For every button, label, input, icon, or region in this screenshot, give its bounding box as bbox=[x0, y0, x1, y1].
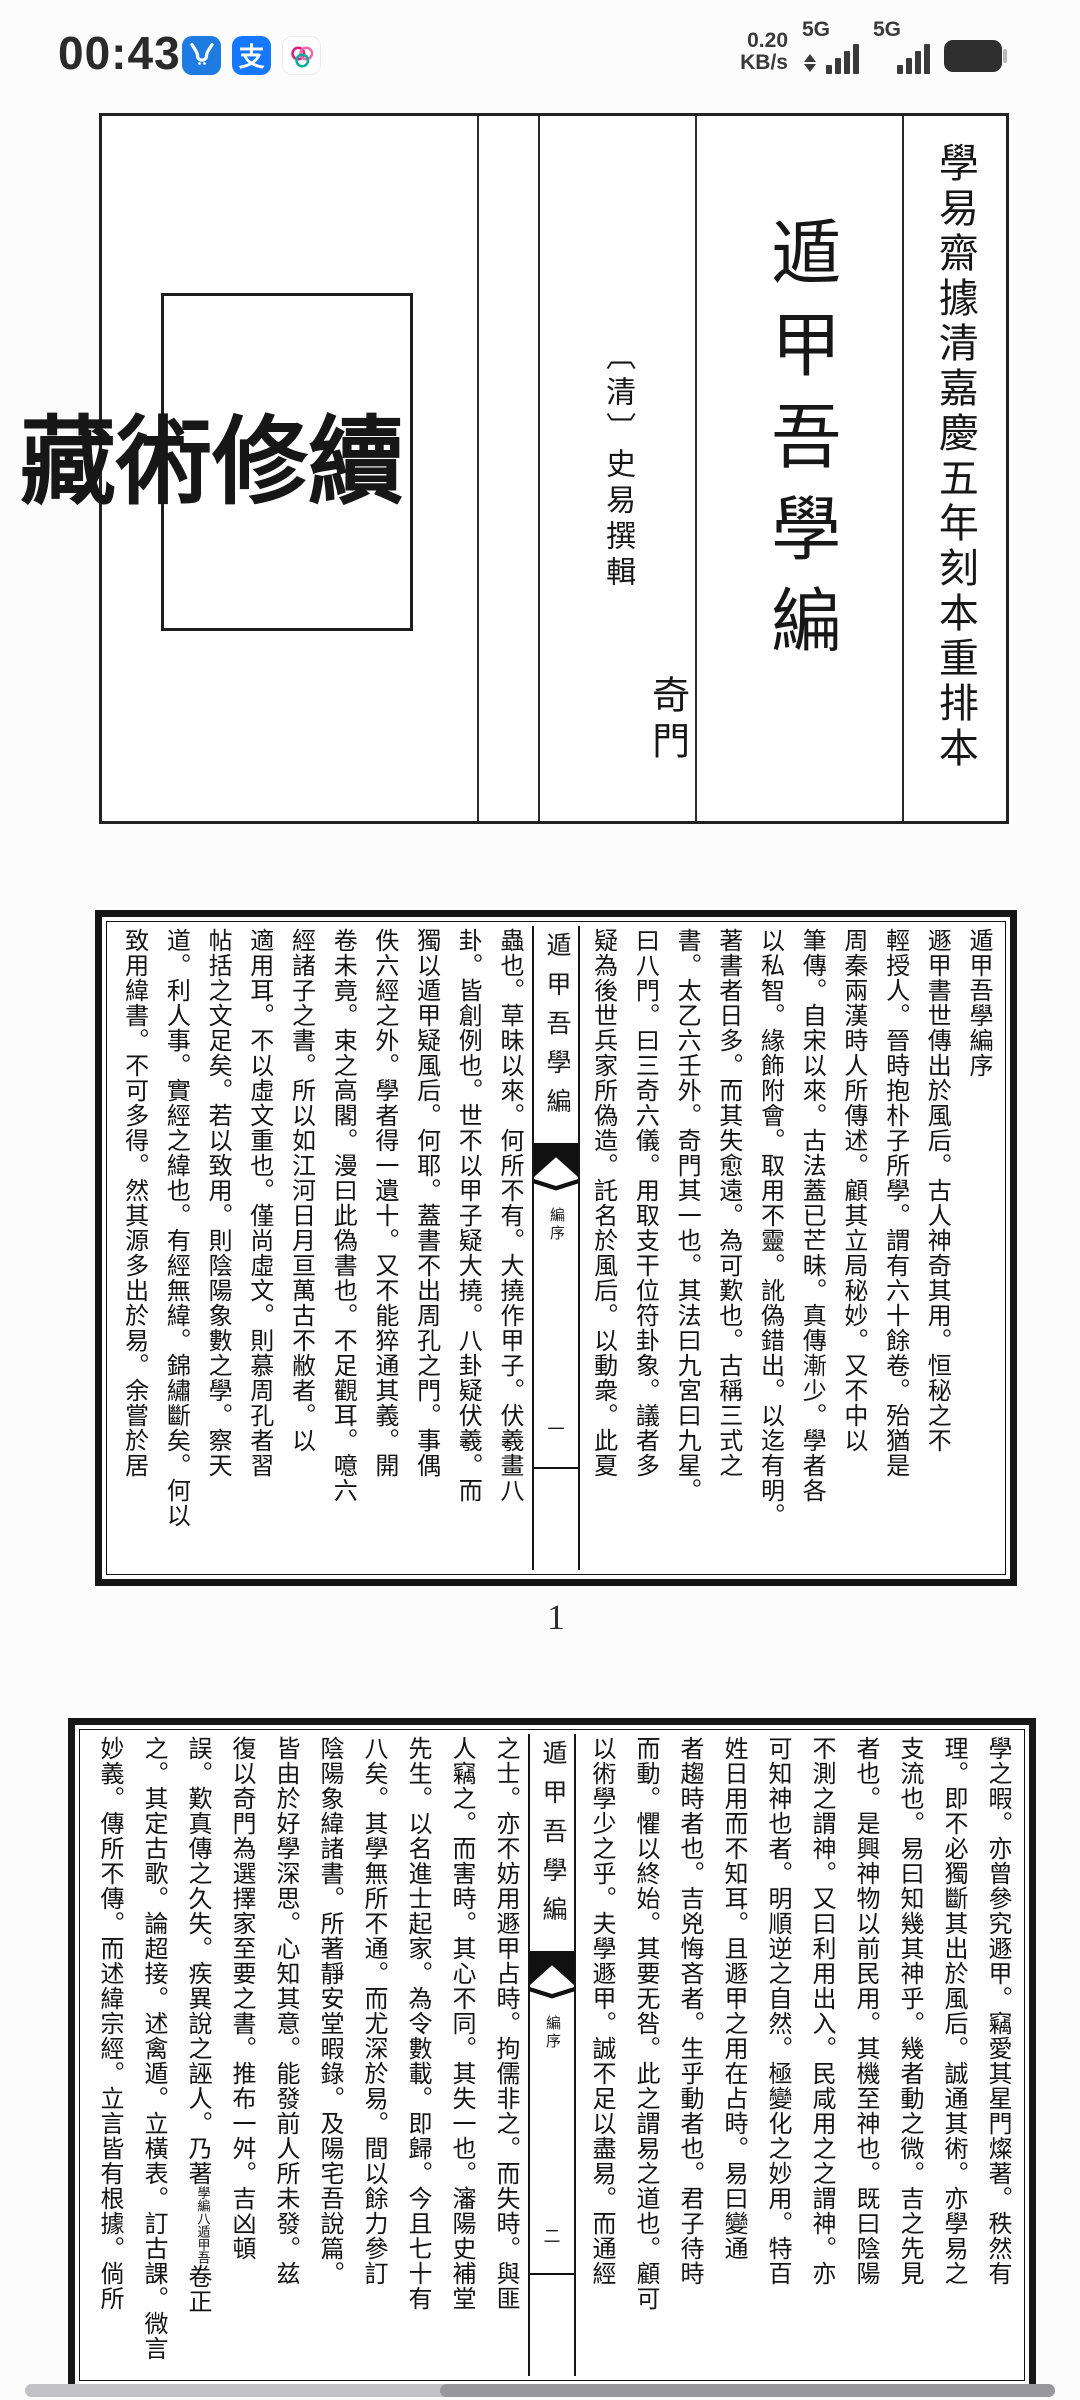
text-column: 疑為後世兵家所偽造。託名於風后。以動衆。此夏 bbox=[582, 926, 624, 1570]
seal-char: 續 bbox=[308, 414, 404, 510]
page2-left-half: 之士。亦不妨用遯甲占時。拘儒非之。而失時。與匪 人竊之。而害時。其心不同。其失一… bbox=[86, 1734, 526, 2376]
page2-right-half: 學之暇。亦曾參究遯甲。竊愛其星門燦著。秩然有 理。即不必獨斷其出於風后。誠通其術… bbox=[578, 1734, 1018, 2376]
text-column: 復以奇門為選擇家至要之書。推布一舛。吉凶頓 bbox=[218, 1734, 262, 2376]
spine-book-title: 遁甲吾學編 bbox=[536, 926, 576, 1127]
spine-divider bbox=[530, 2273, 574, 2275]
text-column: 遯甲書世傳出於風后。古人神奇其用。恒秘之不 bbox=[916, 926, 958, 1570]
collection-seal: 續 修 術 藏 bbox=[161, 293, 413, 631]
text-column: 陰陽象緯諸書。所著靜安堂暇錄。及陽宅吾說篇。 bbox=[306, 1734, 350, 2376]
text-column: 學之暇。亦曾參究遯甲。竊愛其星門燦著。秩然有 bbox=[974, 1734, 1018, 2376]
book-title-page[interactable]: 學易齋據清嘉慶五年刻本重排本 遁甲吾學編 〔清〕史易撰輯 奇門 續 修 術 藏 bbox=[99, 113, 1009, 824]
battery-icon bbox=[944, 40, 1002, 72]
seal-char: 術 bbox=[116, 414, 212, 510]
text-column: 著書者日多。而其失愈遠。為可歎也。古稱三式之 bbox=[707, 926, 749, 1570]
column-text: 卷正 bbox=[184, 2264, 210, 2314]
small-note-col: 學編八 bbox=[196, 2186, 210, 2225]
text-column: 書。太乙六壬外。奇門其一也。其法曰九宮曰九星。 bbox=[665, 926, 707, 1570]
text-column: 姓日用而不知耳。且遯甲之用在占時。易曰變通 bbox=[710, 1734, 754, 2376]
text-column: 以私智。緣飾附會。取用不靈。訛偽錯出。以迄有明。 bbox=[749, 926, 791, 1570]
book-title-column: 遁甲吾學編 bbox=[695, 116, 902, 821]
text-column: 卷未竟。束之高閣。漫曰此偽書也。不足觀耳。噫六 bbox=[321, 926, 363, 1570]
spine-folio-number: 一 bbox=[534, 1415, 578, 1440]
horizontal-scrollbar-track[interactable] bbox=[25, 2384, 1055, 2397]
text-column: 經諸子之書。所以如江河日月亘萬古不敝者。以 bbox=[280, 926, 322, 1570]
sim1-signal: 5G bbox=[802, 24, 859, 74]
category-label: 奇門 bbox=[540, 661, 695, 781]
status-bar: 00:43 支 0.20 KB/s bbox=[0, 0, 1080, 92]
text-column: 輕授人。晉時抱朴子所學。謂有六十餘卷。殆猶是 bbox=[874, 926, 916, 1570]
text-column: 者趨時者也。吉兇悔吝者。生乎動者也。君子待時 bbox=[666, 1734, 710, 2376]
text-column: 者也。是興神物以前民用。其機至神也。既曰陰陽 bbox=[842, 1734, 886, 2376]
network-speed-value: 0.20 bbox=[740, 30, 788, 52]
signal-bars-icon bbox=[826, 44, 859, 74]
text-column-with-note: 誤。歎真傳之久失。疾異說之誣人。乃著遁甲吾學編八卷正 bbox=[174, 1734, 218, 2376]
data-transfer-arrows-icon bbox=[804, 54, 816, 72]
spine-book-title: 遁甲吾學編 bbox=[532, 1734, 572, 1935]
scan-page-2[interactable]: 學之暇。亦曾參究遯甲。竊愛其星門燦著。秩然有 理。即不必獨斷其出於風后。誠通其術… bbox=[68, 1718, 1036, 2392]
book-title: 遁甲吾學編 bbox=[749, 216, 850, 821]
clock: 00:43 bbox=[58, 26, 181, 80]
text-column: 獨以遁甲疑風后。何耶。蓋書不出周孔之門。事偶 bbox=[405, 926, 447, 1570]
text-column: 可知神也者。明順逆之自然。極變化之妙用。特百 bbox=[754, 1734, 798, 2376]
text-column: 道。利人事。實經之緯也。有經無緯。錦繡斷矣。何以 bbox=[155, 926, 197, 1570]
fishtail-chevron-icon bbox=[534, 1179, 578, 1191]
spine-divider bbox=[534, 1467, 578, 1469]
small-note-col: 遁甲吾 bbox=[196, 2225, 210, 2264]
alipay-app-icon: 支 bbox=[232, 36, 271, 75]
sim1-network-type: 5G bbox=[802, 18, 830, 42]
text-column: 佚六經之外。學者得一遺十。又不能猝通其義。開 bbox=[363, 926, 405, 1570]
text-column: 皆由於好學深思。心知其意。能發前人所未發。兹 bbox=[262, 1734, 306, 2376]
seal-char: 修 bbox=[212, 414, 308, 510]
page1-left-half: 蟲也。草昧以來。何所不有。大撓作甲子。伏羲畫八 卦。皆創例也。世不以甲子疑大撓。… bbox=[113, 926, 530, 1570]
page2-spine: 遁甲吾學編 編序 二 bbox=[528, 1734, 576, 2376]
text-column: 周秦兩漢時人所傳述。顧其立局秘妙。又不中以 bbox=[832, 926, 874, 1570]
seal-section: 續 修 術 藏 bbox=[102, 116, 477, 821]
text-column: 帖括之文足矣。若以致用。則陰陽象數之學。察天 bbox=[196, 926, 238, 1570]
scan-page-1[interactable]: 遁甲吾學編序 遯甲書世傳出於風后。古人神奇其用。恒秘之不 輕授人。晉時抱朴子所學… bbox=[95, 910, 1017, 1586]
inline-small-note: 遁甲吾學編八 bbox=[196, 2186, 210, 2264]
text-column: 理。即不必獨斷其出於風后。誠通其術。亦學易之 bbox=[930, 1734, 974, 2376]
preface-heading-column: 遁甲吾學編序 bbox=[957, 926, 999, 1570]
seal-char: 藏 bbox=[20, 414, 116, 510]
text-column: 妙義。傳所不傳。而述緯宗經。立言皆有根據。倘所 bbox=[86, 1734, 130, 2376]
phone-screen: 00:43 支 0.20 KB/s bbox=[0, 0, 1080, 2400]
text-column: 不測之謂神。又曰利用出入。民咸用之之謂神。亦 bbox=[798, 1734, 842, 2376]
edition-note-column: 學易齋據清嘉慶五年刻本重排本 bbox=[902, 116, 1006, 821]
signal-bars-icon bbox=[897, 44, 930, 74]
page1-right-half: 遁甲吾學編序 遯甲書世傳出於風后。古人神奇其用。恒秘之不 輕授人。晉時抱朴子所學… bbox=[582, 926, 999, 1570]
petals-app-icon bbox=[282, 36, 321, 75]
text-column: 以術學少之乎。夫學遯甲。誠不足以盡易。而通經 bbox=[578, 1734, 622, 2376]
text-column: 蟲也。草昧以來。何所不有。大撓作甲子。伏羲畫八 bbox=[488, 926, 530, 1570]
text-column: 人竊之。而害時。其心不同。其失一也。瀋陽史補堂 bbox=[438, 1734, 482, 2376]
edition-note: 學易齋據清嘉慶五年刻本重排本 bbox=[926, 142, 984, 772]
notification-icons: 支 bbox=[182, 36, 321, 75]
text-column: 先生。以名進士起家。為令數載。即歸。今且七十有 bbox=[394, 1734, 438, 2376]
text-column: 筆傳。自宋以來。古法蓋已芒昧。真傳漸少。學者各 bbox=[790, 926, 832, 1570]
blank-column bbox=[477, 116, 538, 821]
spine-section-label: 編序 bbox=[536, 1207, 576, 1243]
bull-app-icon bbox=[182, 36, 221, 75]
text-column: 八矣。其學無所不通。而尤深於易。間以餘力參訂 bbox=[350, 1734, 394, 2376]
text-column: 之。其定古歌。論超接。述禽遁。立橫表。訂古課。微言 bbox=[130, 1734, 174, 2376]
sim2-signal: 5G bbox=[873, 24, 930, 74]
spine-section-label: 編序 bbox=[532, 2015, 572, 2051]
network-speed-unit: KB/s bbox=[740, 52, 788, 74]
text-column: 之士。亦不妨用遯甲占時。拘儒非之。而失時。與匪 bbox=[482, 1734, 526, 2376]
author-column: 〔清〕史易撰輯 奇門 bbox=[538, 116, 695, 821]
fishtail-chevron-icon bbox=[530, 1987, 574, 1999]
pdf-page-number: 1 bbox=[95, 1596, 1017, 1638]
sim2-network-type: 5G bbox=[873, 18, 901, 42]
spine-folio-number: 二 bbox=[530, 2222, 574, 2247]
horizontal-scrollbar-thumb[interactable] bbox=[440, 2384, 1055, 2397]
text-column: 支流也。易曰知幾其神乎。幾者動之微。吉之先見 bbox=[886, 1734, 930, 2376]
status-indicators: 0.20 KB/s 5G 5G bbox=[740, 24, 1002, 74]
fishtail-mark-icon bbox=[534, 1143, 578, 1177]
text-column: 卦。皆創例也。世不以甲子疑大撓。八卦疑伏羲。而 bbox=[447, 926, 489, 1570]
text-column: 曰八門。曰三奇六儀。用取支干位符卦象。議者多 bbox=[624, 926, 666, 1570]
page1-spine: 遁甲吾學編 編序 一 bbox=[532, 926, 580, 1570]
fishtail-mark-icon bbox=[530, 1951, 574, 1985]
network-speed: 0.20 KB/s bbox=[740, 30, 788, 74]
text-column: 而動。懼以終始。其要无咎。此之謂易之道也。顧可 bbox=[622, 1734, 666, 2376]
text-column: 致用緯書。不可多得。然其源多出於易。余嘗於居 bbox=[113, 926, 155, 1570]
column-text: 誤。歎真傳之久失。疾異說之誣人。乃著 bbox=[184, 1736, 210, 2186]
text-column: 適用耳。不以虛文重也。僅尚虛文。則慕周孔者習 bbox=[238, 926, 280, 1570]
